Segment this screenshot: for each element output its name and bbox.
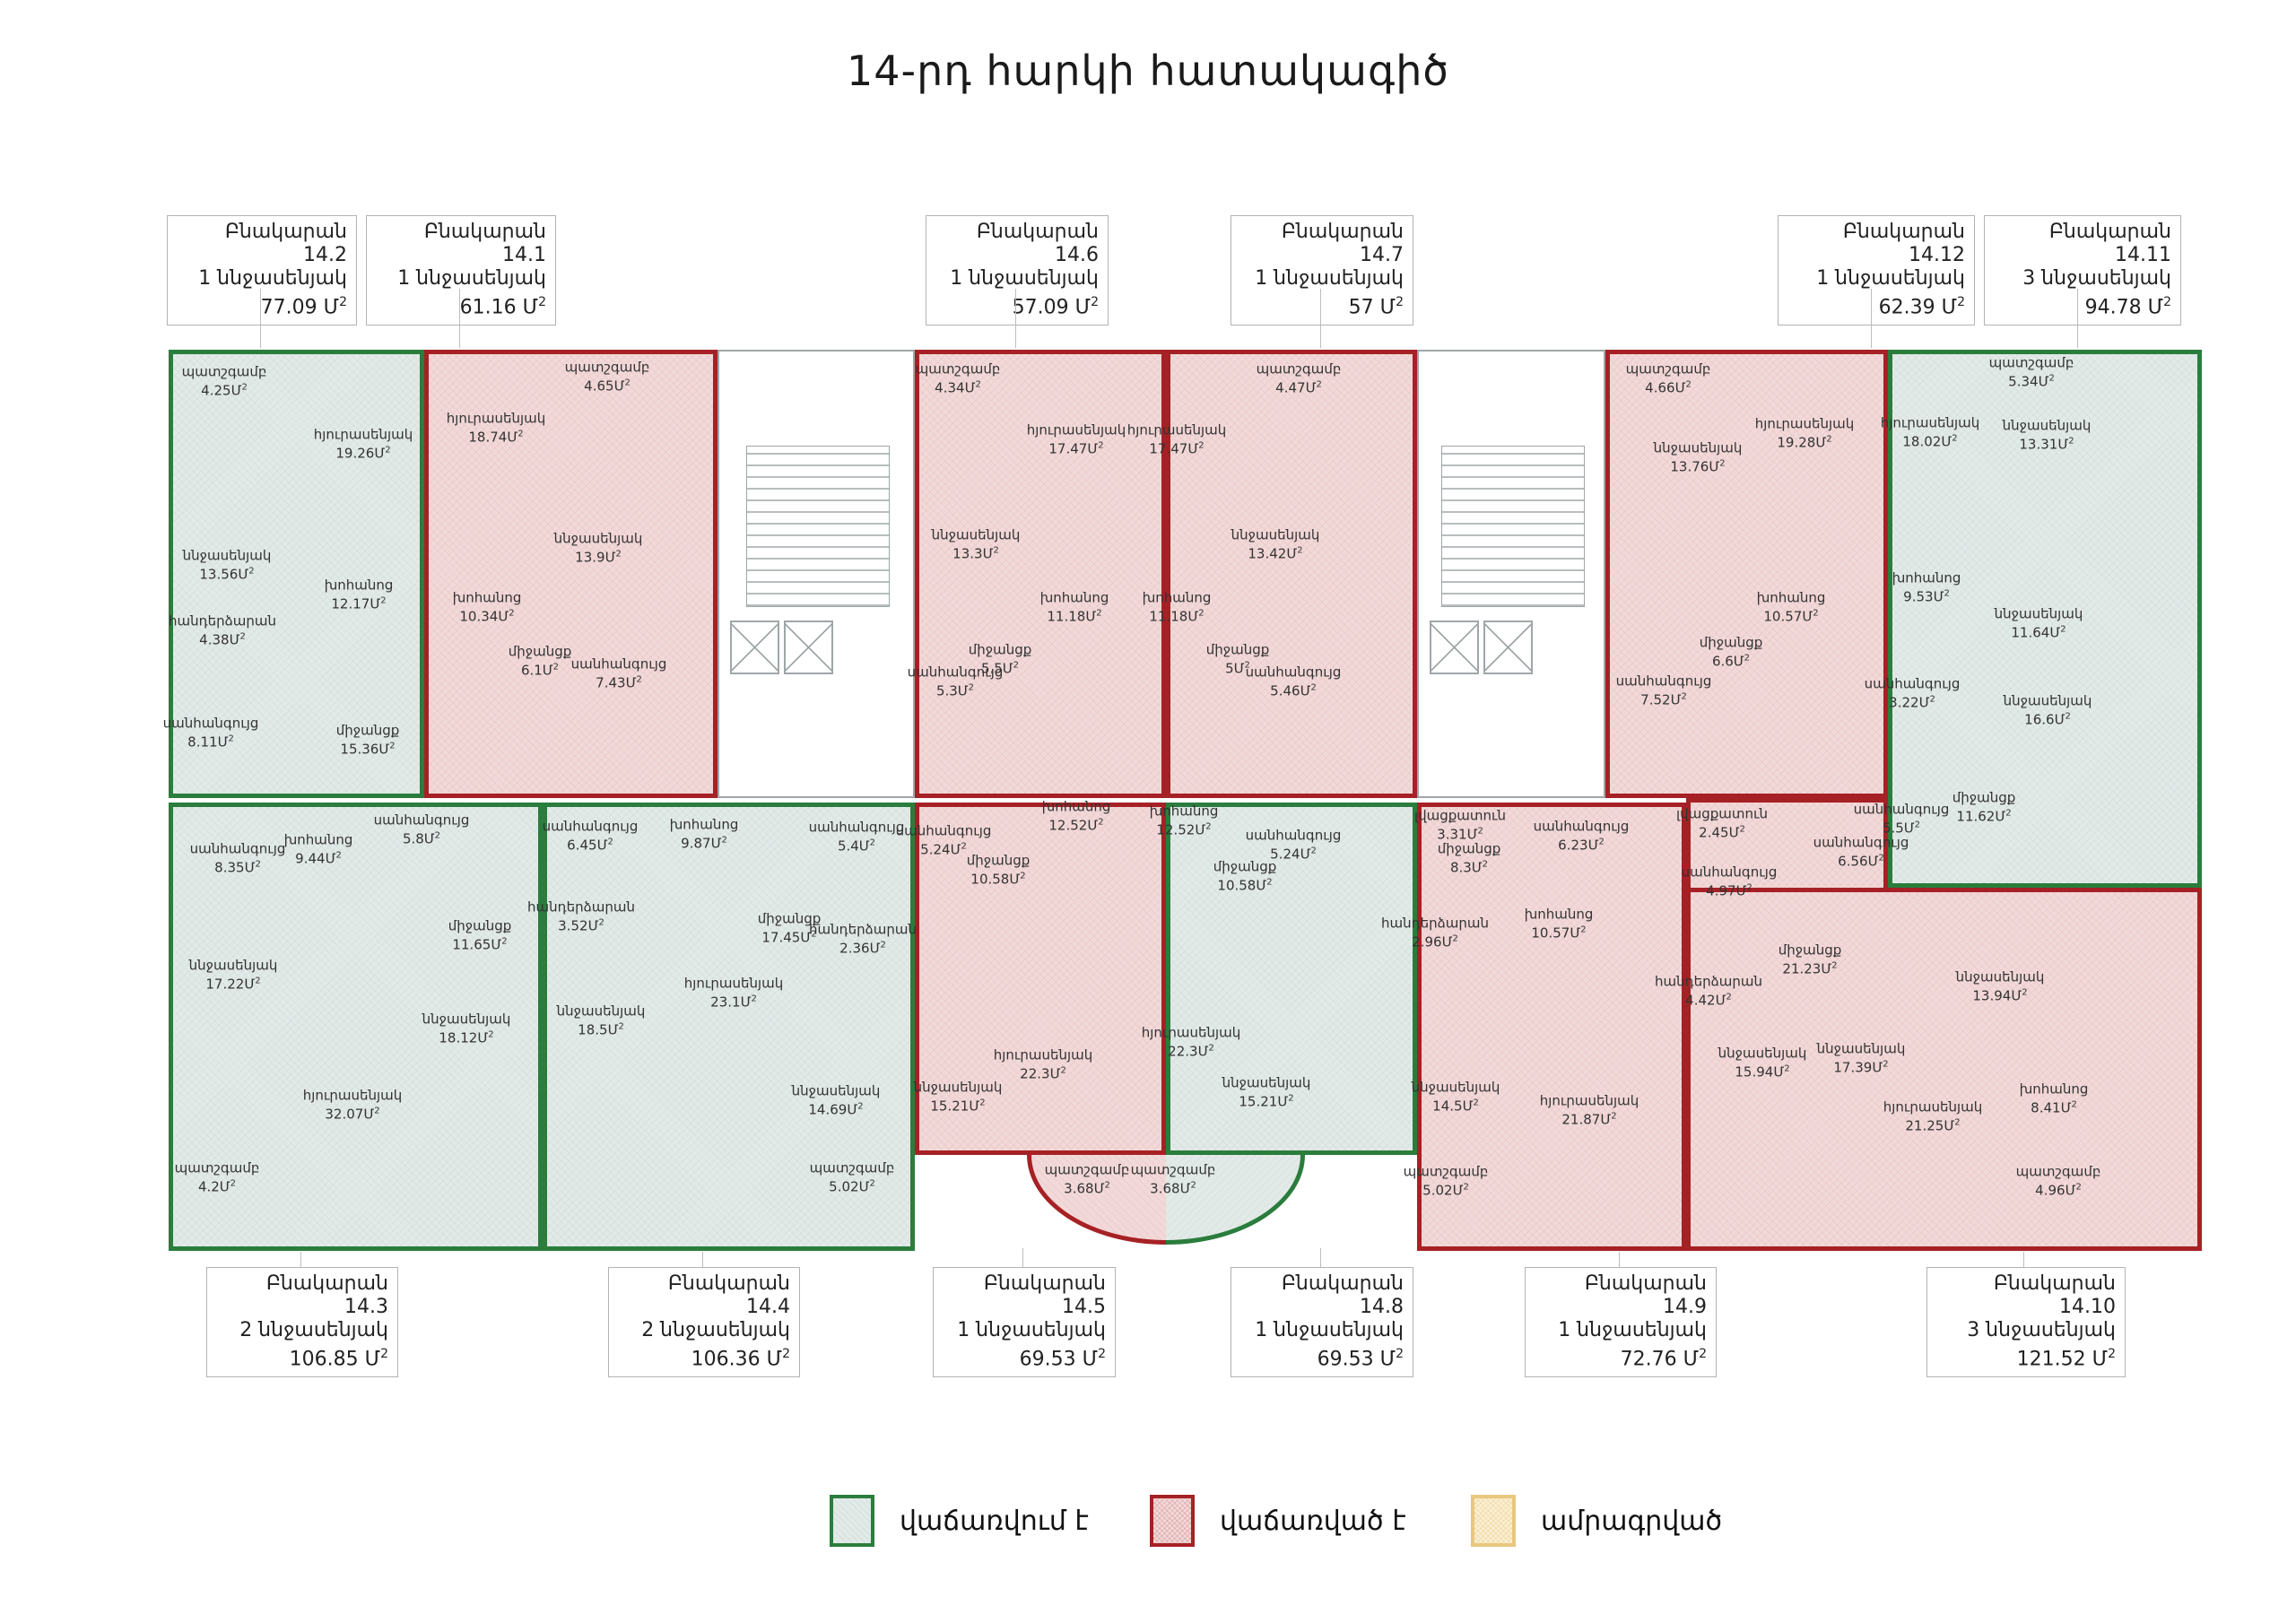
sold-swatch-icon <box>1150 1495 1195 1547</box>
leader-line <box>1320 289 1321 348</box>
room-label: ննջասենյակ15.21Մ2 <box>914 1080 1003 1115</box>
unit-rooms: 2 ննջասենյակ <box>216 1319 388 1342</box>
stair-core-right <box>1417 350 1605 798</box>
unit-area: 57.09 Մ2 <box>935 291 1099 319</box>
room-label: պատշգամբ3.68Մ2 <box>1131 1162 1216 1197</box>
room-label: ննջասենյակ13.42Մ2 <box>1231 527 1320 562</box>
unit-box-14-1: Բնակարան 14.1 1 ննջասենյակ 61.16 Մ2 <box>366 215 556 325</box>
room-label: սանհանգույց5.4Մ2 <box>809 820 905 855</box>
room-label: խոհանոց10.57Մ2 <box>1525 907 1594 942</box>
unit-box-14-2: Բնակարան 14.2 1 ննջասենյակ 77.09 Մ2 <box>167 215 357 325</box>
unit-rooms: 2 ննջասենյակ <box>618 1319 790 1342</box>
unit-rooms: 3 ննջասենյակ <box>1994 267 2171 291</box>
room-label: պատշգամբ5.02Մ2 <box>810 1160 895 1195</box>
legend-item-available: վաճառվում է <box>830 1495 1089 1547</box>
room-label: պատշգամբ4.66Մ2 <box>1626 361 1711 396</box>
stairs-icon <box>746 446 890 607</box>
leader-line <box>1871 289 1872 348</box>
room-label: հյուրասենյակ17.47Մ2 <box>1127 422 1226 457</box>
room-label: հյուրասենյակ19.28Մ2 <box>1755 416 1854 451</box>
room-label: սանհանգույց3.22Մ2 <box>1865 676 1961 711</box>
elevator-icon <box>1483 621 1533 674</box>
unit-rooms: 1 ննջասենյակ <box>177 267 347 291</box>
room-label: հյուրասենյակ32.07Մ2 <box>303 1088 402 1123</box>
room-label: խոհանոց9.44Մ2 <box>284 832 353 867</box>
elevator-icon <box>730 621 779 674</box>
room-label: միջանցք11.62Մ2 <box>1952 790 2016 825</box>
room-label: սանհանգույց5.3Մ2 <box>908 664 1004 699</box>
room-label: սանհանգույց5.5Մ2 <box>1854 802 1950 837</box>
room-label: հյուրասենյակ18.02Մ2 <box>1881 415 1979 450</box>
room-label: սանհանգույց8.35Մ2 <box>190 841 286 876</box>
unit-area: 121.52 Մ2 <box>1936 1342 2116 1371</box>
unit-area: 77.09 Մ2 <box>177 291 347 319</box>
room-label: խոհանոց12.52Մ2 <box>1150 803 1219 838</box>
unit-box-14-10: Բնակարան 14.10 3 ննջասենյակ 121.52 Մ2 <box>1926 1267 2126 1377</box>
unit-name: Բնակարան 14.2 <box>177 221 347 267</box>
room-label: խոհանոց12.52Մ2 <box>1042 799 1111 834</box>
unit-rooms: 1 ննջասենյակ <box>1787 267 1965 291</box>
room-label: միջանցք10.58Մ2 <box>1213 859 1277 894</box>
room-label: ննջասենյակ17.39Մ2 <box>1817 1041 1906 1076</box>
room-label: սանհանգույց4.97Մ2 <box>1682 864 1778 899</box>
unit-area: 72.76 Մ2 <box>1535 1342 1707 1371</box>
floor-plan: պատշգամբ4.25Մ2հյուրասենյակ19.26Մ2ննջասեն… <box>161 345 2206 1255</box>
room-label: միջանցք8.3Մ2 <box>1438 841 1501 876</box>
room-label: սանհանգույց7.43Մ2 <box>571 656 667 691</box>
room-label: հյուրասենյակ21.87Մ2 <box>1540 1093 1639 1128</box>
unit-area: 57 Մ2 <box>1240 291 1404 319</box>
room-label: սանհանգույց6.56Մ2 <box>1813 835 1909 870</box>
room-label: հյուրասենյակ17.47Մ2 <box>1027 422 1126 457</box>
unit-area: 62.39 Մ2 <box>1787 291 1965 319</box>
room-label: ննջասենյակ15.94Մ2 <box>1718 1046 1807 1081</box>
room-label: միջանցք11.65Մ2 <box>448 918 512 953</box>
legend-label: վաճառվում է <box>900 1506 1089 1537</box>
leader-line <box>260 289 261 348</box>
leader-line <box>1015 289 1016 348</box>
room-label: պատշգամբ4.2Մ2 <box>175 1160 260 1195</box>
room-label: հանդերձարան4.42Մ2 <box>1655 974 1762 1009</box>
page-title: 14-րդ հարկի հատակագիծ <box>0 47 2296 95</box>
room-label: միջանցք21.23Մ2 <box>1779 942 1842 977</box>
room-label: հանդերձարան3.52Մ2 <box>527 899 635 934</box>
room-label: սանհանգույց5.24Մ2 <box>1246 828 1342 863</box>
unit-area: 106.36 Մ2 <box>618 1342 790 1371</box>
room-label: ննջասենյակ14.69Մ2 <box>792 1083 881 1118</box>
room-label: պատշգամբ4.47Մ2 <box>1257 361 1342 396</box>
unit-name: Բնակարան 14.4 <box>618 1272 790 1319</box>
unit-box-14-5: Բնակարան 14.5 1 ննջասենյակ 69.53 Մ2 <box>933 1267 1116 1377</box>
unit-area: 69.53 Մ2 <box>1240 1342 1404 1371</box>
unit-area: 69.53 Մ2 <box>943 1342 1106 1371</box>
unit-box-14-4: Բնակարան 14.4 2 ննջասենյակ 106.36 Մ2 <box>608 1267 800 1377</box>
unit-name: Բնակարան 14.5 <box>943 1272 1106 1319</box>
legend-item-reserved: ամրագրված <box>1471 1495 1722 1547</box>
room-label: սանհանգույց8.11Մ2 <box>163 716 259 751</box>
room-label: ննջասենյակ18.5Մ2 <box>557 1003 646 1038</box>
apartment-region-14-6 <box>915 350 1166 798</box>
room-label: պատշգամբ4.96Մ2 <box>2016 1164 2101 1199</box>
room-label: հյուրասենյակ19.26Մ2 <box>314 427 413 462</box>
unit-area: 61.16 Մ2 <box>376 291 546 319</box>
unit-area: 106.85 Մ2 <box>216 1342 388 1371</box>
room-label: միջանցք6.6Մ2 <box>1700 635 1763 670</box>
unit-name: Բնակարան 14.11 <box>1994 221 2171 267</box>
room-label: միջանցք15.36Մ2 <box>336 723 400 758</box>
reserved-swatch-icon <box>1471 1495 1516 1547</box>
unit-box-14-12: Բնակարան 14.12 1 ննջասենյակ 62.39 Մ2 <box>1778 215 1975 325</box>
unit-rooms: 1 ննջասենյակ <box>1535 1319 1707 1342</box>
unit-box-14-8: Բնակարան 14.8 1 ննջասենյակ 69.53 Մ2 <box>1231 1267 1413 1377</box>
room-label: խոհանոց12.17Մ2 <box>325 577 394 612</box>
room-label: լվացքատուն2.45Մ2 <box>1676 806 1768 841</box>
room-label: հյուրասենյակ18.74Մ2 <box>447 411 545 446</box>
room-label: հանդերձարան2.36Մ2 <box>809 922 917 957</box>
unit-name: Բնակարան 14.10 <box>1936 1272 2116 1319</box>
room-label: պատշգամբ5.02Մ2 <box>1404 1164 1489 1199</box>
unit-name: Բնակարան 14.12 <box>1787 221 1965 267</box>
leader-line <box>459 289 460 348</box>
room-label: հանդերձարան4.38Մ2 <box>169 613 276 648</box>
leader-line <box>2077 289 2078 348</box>
room-label: հյուրասենյակ21.25Մ2 <box>1883 1099 1982 1134</box>
room-label: պատշգամբ3.68Մ2 <box>1045 1162 1130 1197</box>
room-label: խոհանոց9.53Մ2 <box>1892 570 1961 605</box>
room-label: սանհանգույց6.23Մ2 <box>1534 819 1630 854</box>
room-label: ննջասենյակ13.94Մ2 <box>1956 969 2045 1004</box>
unit-rooms: 1 ննջասենյակ <box>943 1319 1106 1342</box>
room-label: ննջասենյակ13.3Մ2 <box>932 527 1021 562</box>
legend-item-sold: վաճառված է <box>1150 1495 1406 1547</box>
room-label: պատշգամբ4.65Մ2 <box>565 360 650 395</box>
unit-box-14-3: Բնակարան 14.3 2 ննջասենյակ 106.85 Մ2 <box>206 1267 398 1377</box>
room-label: ննջասենյակ13.56Մ2 <box>183 548 272 583</box>
legend-label: վաճառված է <box>1220 1506 1406 1537</box>
room-label: ննջասենյակ13.31Մ2 <box>2003 418 2092 453</box>
unit-name: Բնակարան 14.7 <box>1240 221 1404 267</box>
unit-rooms: 1 ննջասենյակ <box>935 267 1099 291</box>
room-label: ննջասենյակ14.5Մ2 <box>1412 1080 1500 1115</box>
room-label: միջանցք10.58Մ2 <box>967 853 1031 888</box>
room-label: հյուրասենյակ22.3Մ2 <box>994 1047 1092 1082</box>
room-label: լվացքատուն3.31Մ2 <box>1414 808 1506 843</box>
available-swatch-icon <box>830 1495 874 1547</box>
room-label: հյուրասենյակ23.1Մ2 <box>684 976 783 1011</box>
room-label: հանդերձարան2.96Մ2 <box>1381 916 1489 950</box>
unit-area: 94.78 Մ2 <box>1994 291 2171 319</box>
room-label: խոհանոց11.18Մ2 <box>1143 590 1212 625</box>
unit-name: Բնակարան 14.8 <box>1240 1272 1404 1319</box>
room-label: սանհանգույց7.52Մ2 <box>1616 673 1712 708</box>
stair-core-left <box>717 350 915 798</box>
legend-label: ամրագրված <box>1541 1506 1722 1537</box>
room-label: ննջասենյակ11.64Մ2 <box>1995 606 2083 641</box>
unit-box-14-9: Բնակարան 14.9 1 ննջասենյակ 72.76 Մ2 <box>1525 1267 1717 1377</box>
unit-box-14-7: Բնակարան 14.7 1 ննջասենյակ 57 Մ2 <box>1231 215 1413 325</box>
unit-name: Բնակարան 14.9 <box>1535 1272 1707 1319</box>
unit-rooms: 1 ննջասենյակ <box>1240 1319 1404 1342</box>
apartment-region-14-7 <box>1166 350 1417 798</box>
room-label: խոհանոց10.34Մ2 <box>453 590 522 625</box>
unit-name: Բնակարան 14.3 <box>216 1272 388 1319</box>
floor-plan-page: 14-րդ հարկի հատակագիծ Բնակարան 14.2 1 նն… <box>0 0 2296 1623</box>
unit-name: Բնակարան 14.1 <box>376 221 546 267</box>
unit-box-14-11: Բնակարան 14.11 3 ննջասենյակ 94.78 Մ2 <box>1984 215 2181 325</box>
room-label: պատշգամբ4.34Մ2 <box>916 361 1001 396</box>
room-label: սանհանգույց6.45Մ2 <box>543 819 639 854</box>
unit-rooms: 3 ննջասենյակ <box>1936 1319 2116 1342</box>
elevator-icon <box>784 621 833 674</box>
elevator-icon <box>1430 621 1479 674</box>
room-label: պատշգամբ4.25Մ2 <box>182 364 267 399</box>
room-label: ննջասենյակ17.22Մ2 <box>189 958 278 993</box>
room-label: ննջասենյակ13.76Մ2 <box>1654 440 1743 475</box>
room-label: ննջասենյակ13.9Մ2 <box>554 531 643 566</box>
unit-rooms: 1 ննջասենյակ <box>1240 267 1404 291</box>
room-label: միջանցք6.1Մ2 <box>509 644 572 679</box>
room-label: խոհանոց9.87Մ2 <box>670 817 739 852</box>
room-label: հյուրասենյակ22.3Մ2 <box>1142 1025 1240 1060</box>
room-label: խոհանոց10.57Մ2 <box>1757 590 1826 625</box>
stairs-icon <box>1441 446 1585 607</box>
room-label: սանհանգույց5.8Մ2 <box>374 812 470 847</box>
unit-name: Բնակարան 14.6 <box>935 221 1099 267</box>
unit-rooms: 1 ննջասենյակ <box>376 267 546 291</box>
room-label: խոհանոց8.41Մ2 <box>2020 1081 2089 1116</box>
unit-box-14-6: Բնակարան 14.6 1 ննջասենյակ 57.09 Մ2 <box>926 215 1109 325</box>
room-label: ննջասենյակ16.6Մ2 <box>2004 693 2092 728</box>
room-label: ննջասենյակ18.12Մ2 <box>422 1011 511 1046</box>
legend: վաճառվում է վաճառված է ամրագրված <box>0 1484 2296 1565</box>
room-label: պատշգամբ5.34Մ2 <box>1989 355 2074 390</box>
room-label: սանհանգույց5.46Մ2 <box>1246 664 1342 699</box>
room-label: ննջասենյակ15.21Մ2 <box>1222 1075 1311 1110</box>
room-label: խոհանոց11.18Մ2 <box>1040 590 1109 625</box>
